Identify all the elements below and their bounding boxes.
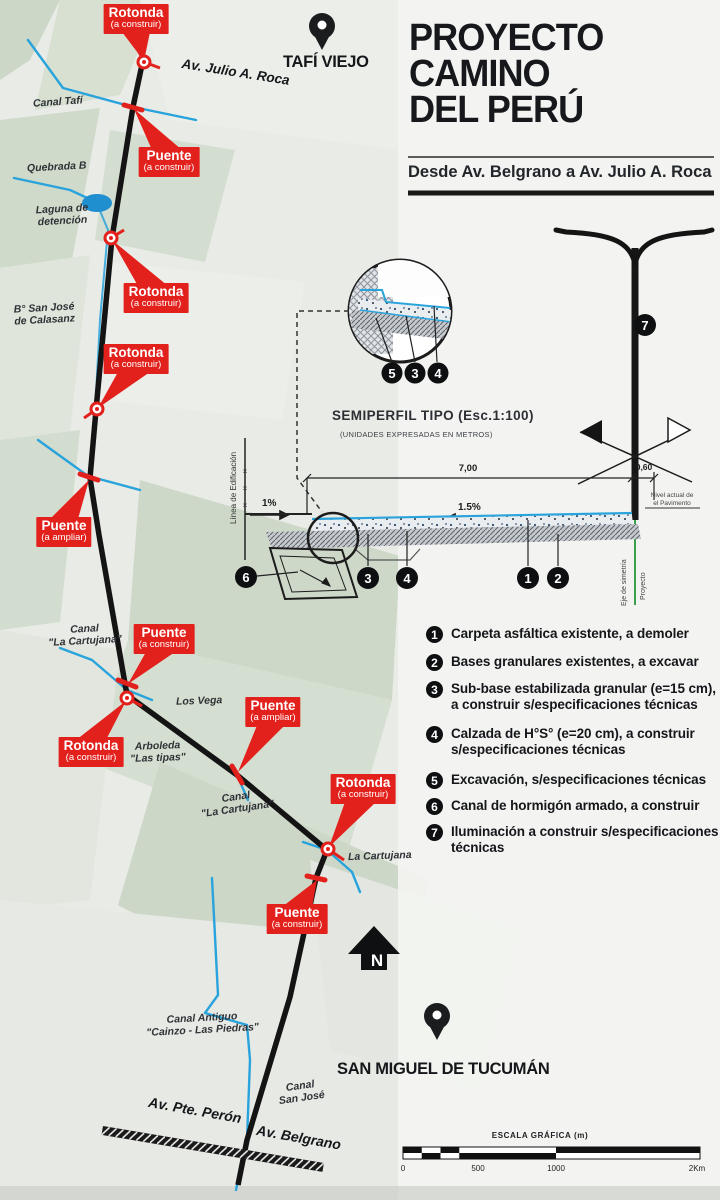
label-barrio: B° San José de Calasanz [13, 301, 75, 327]
label-la-cartujana: La Cartujana [348, 850, 412, 864]
callout-puente-1-title: Puente [144, 149, 195, 163]
page-title: PROYECTO CAMINO DEL PERÚ [409, 20, 603, 128]
callout-rotonda-4: Rotonda (a construir) [59, 737, 124, 767]
detail-balloons: 5 3 4 [382, 363, 449, 384]
legend-item-2: 2 Bases granulares existentes, a excavar [426, 654, 720, 671]
balloon-2: 2 [554, 571, 561, 586]
balloon-3: 3 [411, 366, 418, 381]
balloon-5: 5 [388, 366, 395, 381]
callout-rotonda-1-title: Rotonda [109, 6, 164, 20]
bottom-strip [0, 1186, 720, 1200]
callout-rotonda-4-sub: (a construir) [64, 753, 119, 764]
balloon-6: 6 [242, 570, 249, 585]
legend-text-2: Bases granulares existentes, a excavar [451, 654, 699, 670]
label-arboleda: Arboleda "Las tipas" [130, 740, 186, 765]
label-los-vega: Los Vega [176, 695, 223, 708]
callout-rotonda-3: Rotonda (a construir) [104, 344, 169, 374]
callout-rotonda-1-sub: (a construir) [109, 20, 164, 31]
section-title: SEMIPERFIL TIPO (Esc.1:100) [332, 408, 534, 423]
legend-num-3: 3 [426, 681, 443, 698]
nivel-line2: el Pavimento [653, 500, 691, 507]
legend-num-6: 6 [426, 798, 443, 815]
legend-item-7: 7 Iluminación a construir s/especificaci… [426, 824, 720, 857]
callout-rotonda-3-sub: (a construir) [109, 360, 164, 371]
legend-text-5: Excavación, s/especificaciones técnicas [451, 772, 706, 788]
infographic-poster: N 5 3 4 [0, 0, 720, 1200]
label-laguna: Laguna de detención [35, 203, 89, 229]
balloon-7: 7 [641, 318, 648, 333]
callout-puente-1: Puente (a construir) [139, 147, 200, 177]
scale-bar-title: ESCALA GRÁFICA (m) [460, 1131, 620, 1140]
balloon-1: 1 [524, 571, 531, 586]
callout-puente-1-sub: (a construir) [144, 163, 195, 174]
legend-item-1: 1 Carpeta asfáltica existente, a demoler [426, 626, 720, 643]
callout-rotonda-1: Rotonda (a construir) [104, 4, 169, 34]
callout-puente-5-title: Puente [272, 906, 323, 920]
legend-item-5: 5 Excavación, s/especificaciones técnica… [426, 772, 720, 789]
svg-text:×: × [243, 467, 248, 476]
legend-text-7: Iluminación a construir s/especificacion… [451, 824, 720, 857]
svg-text:×: × [243, 484, 248, 493]
legend-item-6: 6 Canal de hormigón armado, a construir [426, 798, 720, 815]
callout-puente-4: Puente (a ampliar) [245, 697, 300, 727]
legend-num-5: 5 [426, 772, 443, 789]
callout-puente-3-sub: (a construir) [139, 640, 190, 651]
section-scale-text: (Esc.1:100) [458, 408, 534, 423]
legend-num-4: 4 [426, 726, 443, 743]
title-line-1: PROYECTO [409, 20, 603, 56]
scale-500: 500 [471, 1164, 485, 1173]
label-cartujana-a: Canal "La Cartujana" [47, 622, 122, 649]
callout-rotonda-3-title: Rotonda [109, 346, 164, 360]
callout-rotonda-4-title: Rotonda [64, 739, 119, 753]
callout-puente-4-title: Puente [250, 699, 295, 713]
city-tafi-viejo: TAFÍ VIEJO [283, 53, 369, 72]
fence-marks: ××× [243, 467, 248, 510]
callout-rotonda-2-sub: (a construir) [129, 299, 184, 310]
dim-060: 0,60 [636, 462, 653, 472]
legend-text-3: Sub-base estabilizada granular (e=15 cm)… [451, 681, 720, 714]
callout-puente-3: Puente (a construir) [134, 624, 195, 654]
callout-rotonda-5-title: Rotonda [336, 776, 391, 790]
callout-rotonda-2-title: Rotonda [129, 285, 184, 299]
callout-puente-3-title: Puente [139, 626, 190, 640]
scale-0: 0 [401, 1164, 406, 1173]
dim-7m: 7,00 [459, 463, 478, 474]
balloon-4b: 4 [403, 571, 411, 586]
section-units: (UNIDADES EXPRESADAS EN METROS) [340, 430, 493, 439]
svg-text:×: × [243, 501, 248, 510]
legend-text-1: Carpeta asfáltica existente, a demoler [451, 626, 689, 642]
legend-item-3: 3 Sub-base estabilizada granular (e=15 c… [426, 681, 720, 714]
callout-puente-2-sub: (a ampliar) [41, 533, 86, 544]
callout-puente-2-title: Puente [41, 519, 86, 533]
city-san-miguel: SAN MIGUEL DE TUCUMÁN [337, 1060, 549, 1079]
callout-rotonda-5: Rotonda (a construir) [331, 774, 396, 804]
callout-rotonda-5-sub: (a construir) [336, 790, 391, 801]
callout-puente-4-sub: (a ampliar) [250, 713, 295, 724]
nivel-line1: Nivel actual de [651, 492, 694, 499]
title-line-2: CAMINO [409, 56, 603, 92]
north-letter: N [371, 951, 383, 970]
balloon-4: 4 [434, 366, 442, 381]
slope-1pct: 1% [262, 498, 277, 509]
eje-text-1: Eje de simetría [621, 559, 628, 606]
legend-num-7: 7 [426, 824, 443, 841]
scale-1000: 1000 [547, 1164, 565, 1173]
callout-rotonda-2: Rotonda (a construir) [124, 283, 189, 313]
balloon-3b: 3 [364, 571, 371, 586]
callout-puente-2: Puente (a ampliar) [36, 517, 91, 547]
page-subtitle: Desde Av. Belgrano a Av. Julio A. Roca [408, 163, 712, 182]
scale-2km: 2Km [689, 1164, 706, 1173]
label-arboleda-2: "Las tipas" [130, 752, 186, 765]
title-line-3: DEL PERÚ [409, 92, 603, 128]
section-title-text: SEMIPERFIL TIPO [332, 408, 454, 423]
legend-num-2: 2 [426, 654, 443, 671]
callout-puente-5-sub: (a construir) [272, 920, 323, 931]
linea-edificacion-text: Línea de Edificación [229, 452, 238, 524]
legend-text-6: Canal de hormigón armado, a construir [451, 798, 699, 814]
legend-text-4: Calzada de H°S° (e=20 cm), a construir s… [451, 726, 720, 759]
slope-15pct: 1.5% [458, 502, 481, 513]
callout-puente-5: Puente (a construir) [267, 904, 328, 934]
eje-text-2: Proyecto [640, 572, 647, 600]
legend-num-1: 1 [426, 626, 443, 643]
legend-item-4: 4 Calzada de H°S° (e=20 cm), a construir… [426, 726, 720, 759]
